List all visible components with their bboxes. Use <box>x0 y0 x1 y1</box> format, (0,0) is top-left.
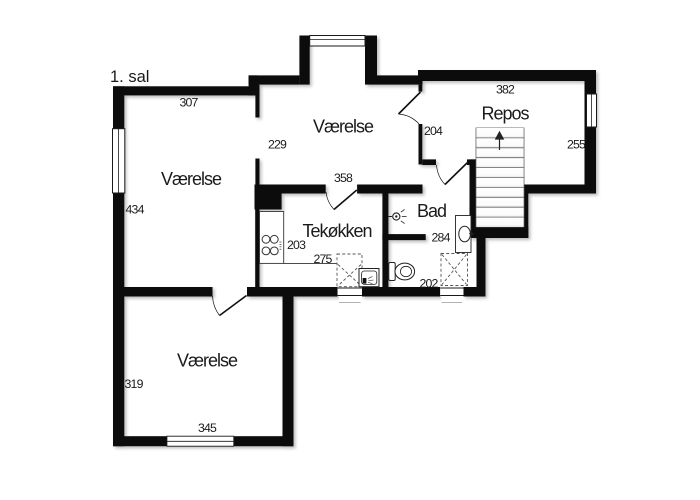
svg-text:Værelse: Værelse <box>161 169 222 189</box>
svg-text:1. sal: 1. sal <box>110 68 149 86</box>
svg-text:307: 307 <box>179 96 198 110</box>
svg-text:319: 319 <box>125 377 144 391</box>
svg-text:255: 255 <box>567 138 586 152</box>
svg-text:345: 345 <box>198 421 217 435</box>
svg-text:Tekøkken: Tekøkken <box>302 221 371 241</box>
svg-text:434: 434 <box>126 203 145 217</box>
svg-text:204: 204 <box>424 124 443 138</box>
svg-text:202: 202 <box>419 277 438 291</box>
svg-text:Værelse: Værelse <box>313 117 374 137</box>
svg-text:Værelse: Værelse <box>177 351 238 371</box>
svg-text:Repos: Repos <box>481 104 529 124</box>
svg-text:382: 382 <box>496 83 515 97</box>
svg-text:229: 229 <box>268 138 287 152</box>
svg-text:275: 275 <box>313 252 332 266</box>
svg-text:284: 284 <box>432 231 451 245</box>
svg-text:358: 358 <box>334 171 353 185</box>
svg-text:203: 203 <box>287 238 306 252</box>
svg-text:Bad: Bad <box>417 201 446 221</box>
